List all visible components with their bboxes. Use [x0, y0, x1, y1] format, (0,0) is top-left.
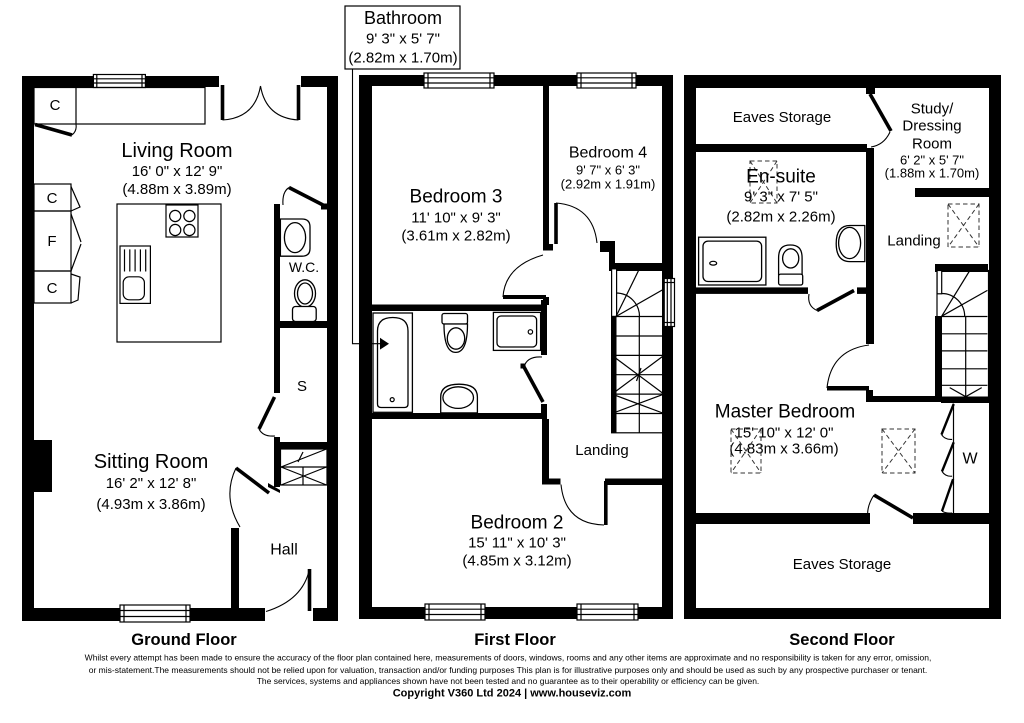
svg-text:Master Bedroom: Master Bedroom	[715, 402, 855, 423]
svg-text:C: C	[50, 97, 61, 114]
svg-text:Landing: Landing	[575, 442, 628, 459]
svg-text:(1.88m x 1.70m): (1.88m x 1.70m)	[885, 166, 980, 181]
svg-text:Eaves Storage: Eaves Storage	[733, 109, 831, 126]
svg-text:Hall: Hall	[270, 542, 298, 559]
svg-text:15' 11" x 10' 3": 15' 11" x 10' 3"	[468, 534, 566, 551]
svg-text:Room: Room	[912, 135, 952, 152]
svg-text:S: S	[297, 378, 307, 395]
svg-text:Sitting Room: Sitting Room	[94, 451, 209, 473]
svg-text:Bedroom 3: Bedroom 3	[410, 187, 503, 208]
svg-text:Whilst every attempt has been: Whilst every attempt has been made to en…	[85, 653, 932, 663]
svg-text:W: W	[962, 451, 978, 468]
svg-text:Study/: Study/	[911, 100, 954, 117]
svg-text:(2.82m x 2.26m): (2.82m x 2.26m)	[726, 208, 835, 225]
svg-text:or mis-statement.The measureme: or mis-statement.The measurements should…	[89, 665, 928, 675]
svg-text:Bathroom: Bathroom	[364, 8, 442, 28]
svg-text:Landing: Landing	[887, 232, 940, 249]
svg-text:En-suite: En-suite	[746, 167, 816, 188]
svg-text:(4.85m x 3.12m): (4.85m x 3.12m)	[462, 552, 571, 569]
svg-text:Copyright V360 Ltd 2024 | www.: Copyright V360 Ltd 2024 | www.houseviz.c…	[393, 688, 632, 700]
svg-text:The services, systems and appl: The services, systems and appliances sho…	[257, 676, 760, 686]
svg-text:(2.92m x 1.91m): (2.92m x 1.91m)	[561, 177, 656, 192]
svg-text:Eaves Storage: Eaves Storage	[793, 556, 891, 573]
svg-text:16' 2" x 12' 8": 16' 2" x 12' 8"	[106, 475, 197, 492]
svg-text:(4.83m x 3.66m): (4.83m x 3.66m)	[729, 440, 838, 457]
svg-text:(2.82m x 1.70m): (2.82m x 1.70m)	[348, 50, 457, 67]
svg-text:9' 3" x 7' 5": 9' 3" x 7' 5"	[744, 188, 818, 205]
svg-text:F: F	[47, 233, 56, 250]
svg-text:Dressing: Dressing	[902, 117, 961, 134]
svg-text:C: C	[47, 280, 58, 297]
svg-text:Ground Floor: Ground Floor	[131, 631, 237, 649]
svg-text:Living Room: Living Room	[121, 140, 232, 162]
svg-text:Second Floor: Second Floor	[789, 631, 895, 649]
svg-text:First Floor: First Floor	[474, 631, 556, 649]
svg-text:(4.88m x 3.89m): (4.88m x 3.89m)	[122, 181, 231, 198]
svg-text:W.C.: W.C.	[289, 259, 319, 275]
svg-text:9' 3" x 5' 7": 9' 3" x 5' 7"	[366, 31, 440, 48]
svg-text:16' 0" x 12' 9": 16' 0" x 12' 9"	[132, 163, 223, 180]
svg-text:(3.61m x 2.82m): (3.61m x 2.82m)	[401, 227, 510, 244]
svg-text:9' 7" x 6' 3": 9' 7" x 6' 3"	[576, 163, 640, 178]
svg-text:15' 10" x 12' 0": 15' 10" x 12' 0"	[735, 424, 834, 441]
svg-text:11' 10" x 9' 3": 11' 10" x 9' 3"	[411, 209, 501, 226]
svg-text:C: C	[47, 190, 58, 207]
svg-text:Bedroom 4: Bedroom 4	[569, 145, 647, 162]
svg-text:(4.93m x 3.86m): (4.93m x 3.86m)	[96, 496, 205, 513]
svg-text:Bedroom 2: Bedroom 2	[471, 513, 564, 534]
